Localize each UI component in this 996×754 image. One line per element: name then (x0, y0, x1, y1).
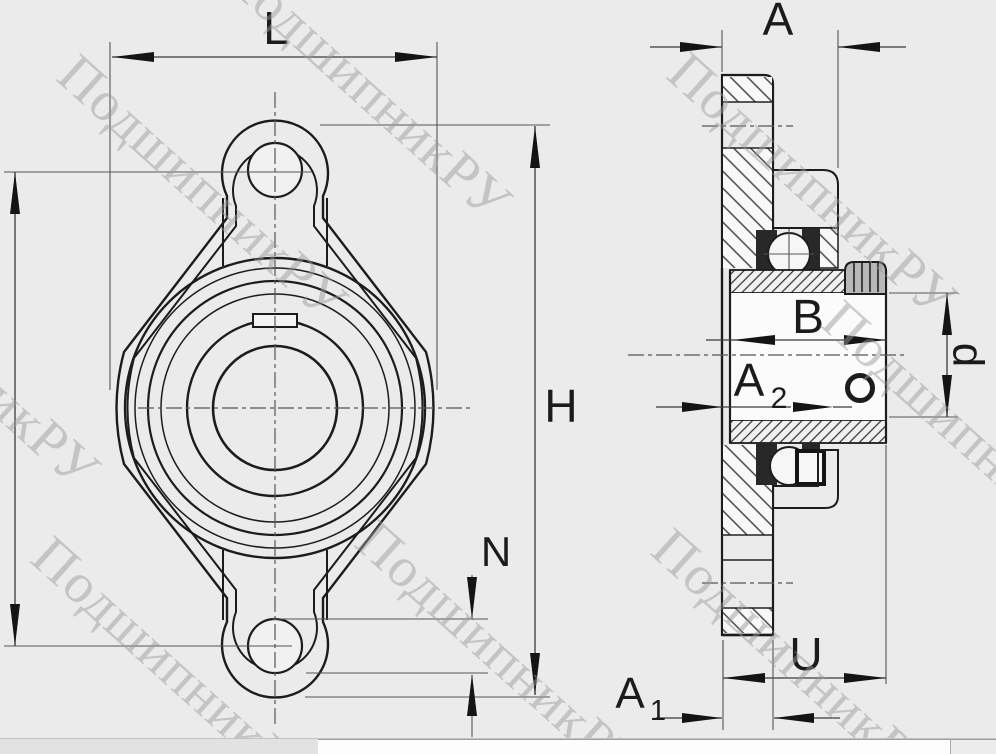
dimension-N: N (272, 528, 511, 737)
dim-label-u: U (789, 628, 822, 680)
dim-label-a2: A (734, 354, 765, 406)
dim-label-a1-sub: 1 (650, 695, 666, 727)
dimension-bolt-spacing (4, 172, 312, 646)
dim-label-h: H (544, 380, 577, 432)
dim-label-a: A (763, 0, 794, 45)
status-strip (0, 738, 996, 754)
dimension-H: H (305, 125, 578, 697)
front-view (117, 92, 471, 728)
bearing-drawing-page: L H N A B (0, 0, 996, 754)
status-strip-main (318, 739, 950, 754)
set-screw (845, 262, 886, 294)
dim-label-b: B (792, 291, 824, 344)
flange-bearing-drawing: L H N A B (0, 0, 996, 754)
seal-insert (797, 451, 824, 484)
housing-upper-wing (818, 228, 838, 268)
scrollbar-corner (950, 739, 996, 754)
set-screw-hole (848, 376, 873, 401)
dimension-d: d (889, 293, 993, 417)
inner-ring-bottom (730, 420, 886, 443)
dim-label-d: d (944, 343, 993, 367)
dimension-A: A (650, 0, 906, 168)
dim-label-n: N (481, 528, 511, 575)
side-view (628, 75, 908, 635)
housing-upper-arm (773, 170, 838, 228)
dim-label-a2-sub: 2 (771, 382, 788, 415)
dim-label-l: L (263, 2, 289, 54)
dim-label-a1: A (615, 669, 645, 718)
